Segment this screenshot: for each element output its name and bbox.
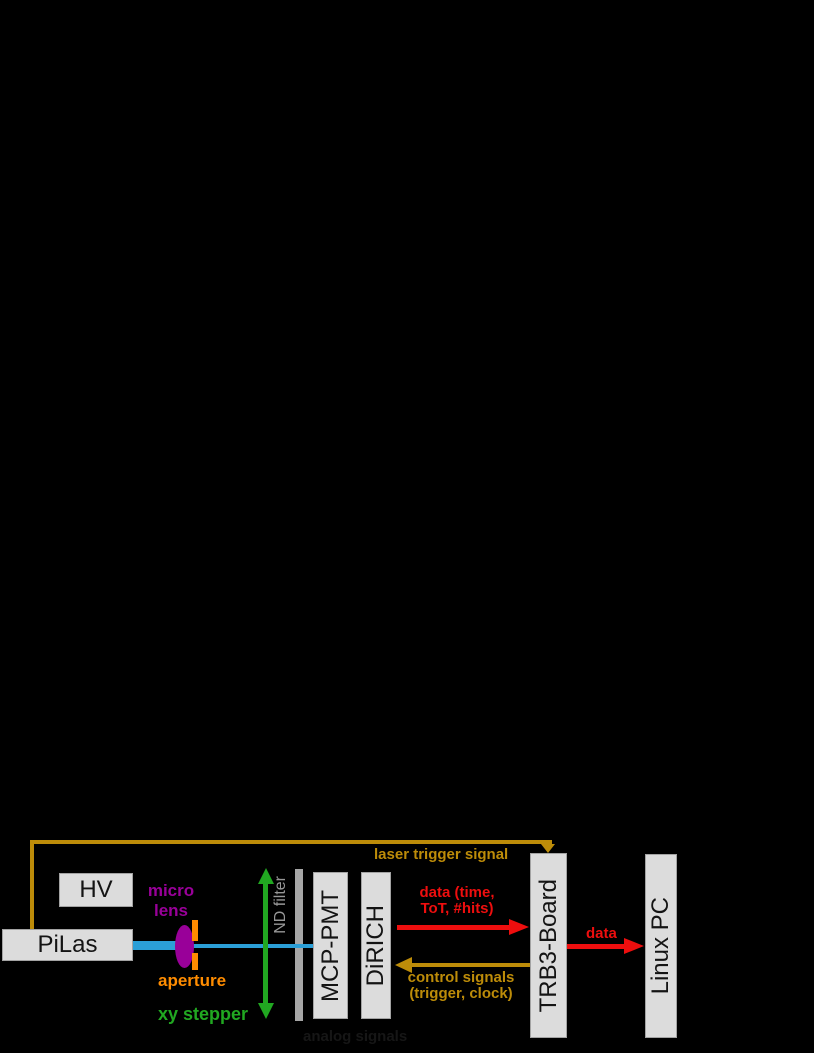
data-arrow-trb3-to-pc-head-icon: [624, 938, 644, 954]
data-arrow-dirich-to-trb3-head-icon: [509, 919, 529, 935]
laser-trigger-wire-vertical-left: [30, 842, 34, 929]
data-time-tot-hits-label: data (time, ToT, #hits): [413, 885, 501, 917]
control-signals-label: control signals (trigger, clock): [405, 970, 517, 1002]
aperture-bottom-blade: [192, 953, 198, 970]
dirich-box-label: DiRICH: [364, 905, 388, 986]
laser-trigger-wire-horizontal: [30, 840, 552, 844]
hv-box-label: HV: [79, 878, 112, 902]
laser-trigger-arrowhead-icon: [541, 844, 555, 853]
hv-box: HV: [59, 873, 133, 907]
xy-stepper-arrow-up-icon: [258, 868, 274, 884]
pilas-box-label: PiLas: [37, 933, 97, 957]
control-signals-arrow-shaft: [410, 963, 533, 967]
dirich-box: DiRICH: [361, 872, 391, 1019]
analog-signals-label: analog signals: [303, 1029, 407, 1045]
pilas-box: PiLas: [2, 929, 133, 961]
laser-test-setup-diagram: laser trigger signal HV PiLas ND filter …: [0, 0, 814, 1053]
mcp-pmt-box-label: MCP-PMT: [319, 890, 343, 1002]
mcp-pmt-box: MCP-PMT: [313, 872, 348, 1019]
laser-trigger-signal-label: laser trigger signal: [374, 847, 508, 863]
aperture-top-blade: [192, 920, 198, 941]
linux-pc-box-label: Linux PC: [649, 897, 673, 994]
trb3-board-box: TRB3-Board: [530, 853, 567, 1038]
laser-beam-thin: [183, 944, 313, 948]
data-label: data: [586, 926, 617, 942]
xy-stepper-arrow-down-icon: [258, 1003, 274, 1019]
aperture-label: aperture: [158, 972, 226, 990]
xy-stepper-arrow-shaft: [263, 882, 268, 1005]
data-arrow-dirich-to-trb3-shaft: [397, 925, 510, 930]
micro-lens-label: micro lens: [138, 881, 204, 921]
linux-pc-box: Linux PC: [645, 854, 677, 1038]
xy-stepper-label: xy stepper: [158, 1005, 248, 1024]
data-arrow-trb3-to-pc-shaft: [567, 944, 625, 949]
trb3-board-box-label: TRB3-Board: [537, 879, 561, 1012]
